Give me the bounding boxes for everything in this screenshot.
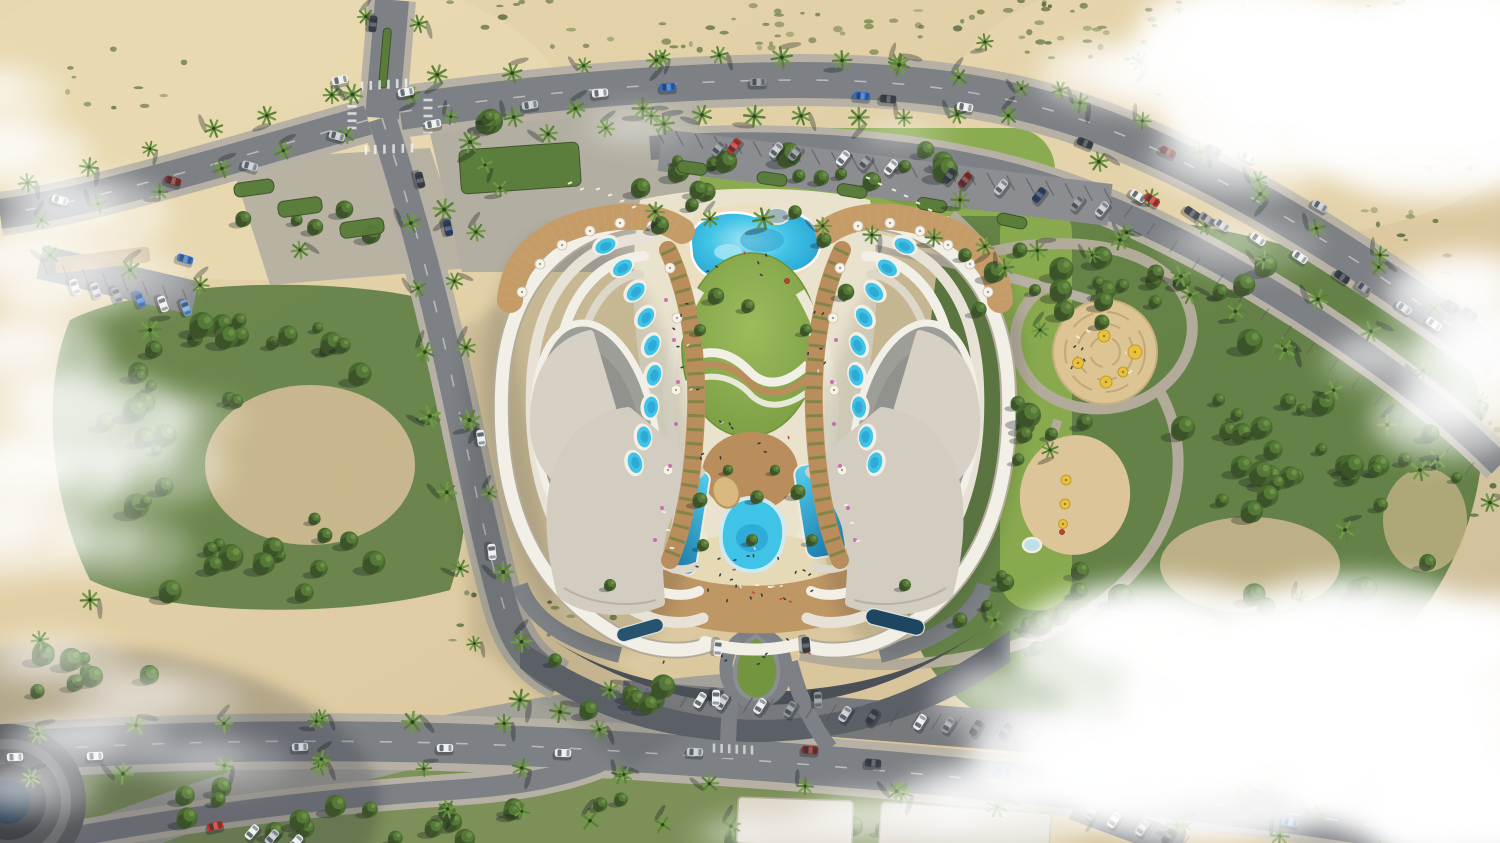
- car: [810, 689, 822, 708]
- yellow-umbrella: [1059, 520, 1068, 529]
- person: [819, 348, 823, 350]
- person: [680, 314, 682, 317]
- car: [435, 744, 454, 755]
- white-umbrella: [585, 226, 595, 236]
- bougainvillea: [668, 464, 672, 468]
- aerial-resort-render: [0, 0, 1500, 843]
- person: [744, 251, 746, 254]
- bougainvillea: [674, 422, 678, 426]
- park-mini-pool: [1023, 538, 1041, 552]
- person: [676, 346, 679, 348]
- person: [685, 303, 689, 305]
- yellow-umbrella: [1061, 475, 1071, 485]
- white-umbrella: [517, 287, 527, 297]
- white-umbrella: [665, 263, 675, 273]
- bougainvillea: [660, 506, 664, 510]
- white-umbrella: [615, 218, 625, 228]
- lounger: [755, 584, 760, 586]
- red-umbrella: [784, 278, 789, 283]
- car: [748, 78, 767, 89]
- car: [289, 743, 308, 755]
- person: [753, 554, 755, 557]
- bougainvillea: [664, 298, 668, 302]
- yellow-umbrella: [1098, 330, 1110, 342]
- yellow-umbrella: [1073, 358, 1084, 369]
- person: [721, 654, 723, 658]
- person: [817, 369, 819, 372]
- aerial-render-stage: [0, 0, 1500, 843]
- car: [552, 749, 571, 761]
- yellow-umbrella: [1060, 499, 1070, 509]
- yellow-umbrella: [1118, 367, 1128, 377]
- red-umbrella: [1059, 529, 1064, 534]
- white-umbrella: [535, 259, 545, 269]
- bougainvillea: [653, 538, 657, 542]
- car: [708, 687, 720, 706]
- white-umbrella: [671, 385, 681, 395]
- yellow-umbrella: [1128, 345, 1142, 359]
- person: [746, 555, 749, 557]
- bougainvillea: [672, 338, 676, 342]
- yellow-umbrella: [1100, 376, 1112, 388]
- hedge: [459, 142, 582, 194]
- white-umbrella: [557, 240, 567, 250]
- bougainvillea: [676, 380, 680, 384]
- person: [771, 586, 774, 588]
